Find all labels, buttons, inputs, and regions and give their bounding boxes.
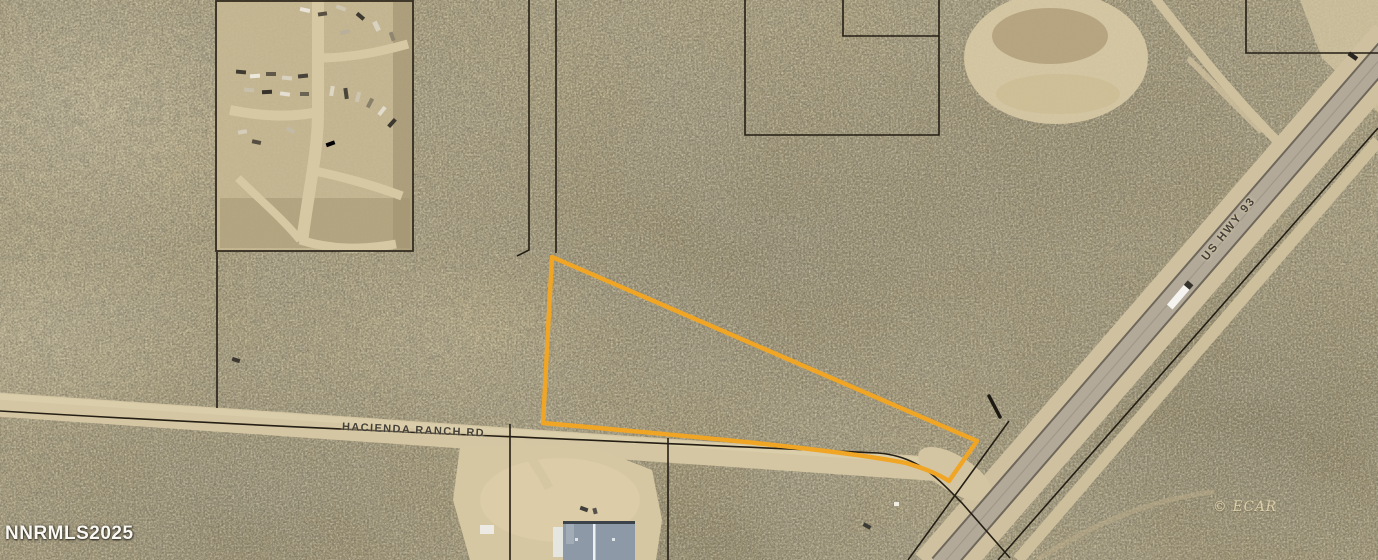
copyright-watermark: © ECAR	[1213, 499, 1277, 515]
mls-watermark: NNRMLS2025	[5, 523, 134, 545]
white-trailer	[480, 525, 494, 534]
map-artwork	[0, 0, 1378, 560]
aerial-map: HACIENDA RANCH RD US HWY 93 NNRMLS2025 ©…	[0, 0, 1378, 560]
vehicle	[894, 502, 899, 506]
warehouse-building	[553, 521, 635, 560]
